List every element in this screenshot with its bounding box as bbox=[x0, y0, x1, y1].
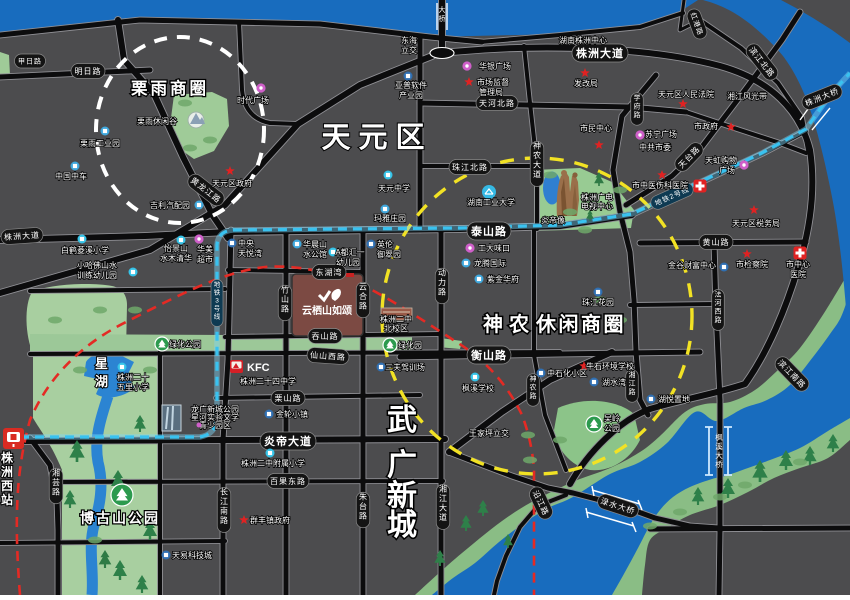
svg-text:道: 道 bbox=[533, 169, 541, 179]
svg-text:中石化小区: 中石化小区 bbox=[547, 368, 587, 378]
svg-text:明日路: 明日路 bbox=[75, 66, 102, 76]
svg-text:路: 路 bbox=[359, 300, 367, 310]
svg-text:湘: 湘 bbox=[439, 484, 447, 494]
svg-text:市场监督: 市场监督 bbox=[477, 77, 509, 87]
svg-text:栗雨工业园: 栗雨工业园 bbox=[80, 138, 120, 148]
svg-text:百果东路: 百果东路 bbox=[270, 476, 306, 486]
svg-text:栗雨休闲谷: 栗雨休闲谷 bbox=[137, 116, 177, 126]
svg-text:天虹购物: 天虹购物 bbox=[705, 155, 737, 165]
svg-text:株洲二中: 株洲二中 bbox=[380, 314, 412, 324]
svg-text:大: 大 bbox=[439, 503, 447, 513]
svg-text:水木清华: 水木清华 bbox=[160, 253, 192, 263]
svg-text:大: 大 bbox=[439, 5, 446, 14]
svg-text:城: 城 bbox=[387, 509, 417, 542]
svg-text:农: 农 bbox=[533, 150, 541, 160]
svg-text:金谷财富中心: 金谷财富中心 bbox=[668, 260, 716, 270]
svg-text:江: 江 bbox=[439, 494, 447, 503]
svg-text:发改局: 发改局 bbox=[574, 78, 598, 88]
svg-text:线: 线 bbox=[214, 312, 221, 321]
svg-text:动: 动 bbox=[438, 267, 446, 277]
svg-text:大: 大 bbox=[533, 160, 541, 170]
svg-text:华美: 华美 bbox=[197, 244, 213, 254]
svg-text:湘江风光带: 湘江风光带 bbox=[727, 91, 767, 101]
svg-text:湖水湾: 湖水湾 bbox=[602, 377, 626, 387]
svg-text:吉利汽配园: 吉利汽配园 bbox=[150, 200, 190, 210]
svg-text:天元区政府: 天元区政府 bbox=[212, 178, 252, 188]
svg-text:株: 株 bbox=[1, 450, 14, 465]
svg-text:长: 长 bbox=[220, 487, 228, 497]
svg-text:湖南工业大学: 湖南工业大学 bbox=[467, 197, 515, 207]
svg-text:产业园: 产业园 bbox=[399, 90, 423, 100]
svg-text:管理局: 管理局 bbox=[479, 87, 503, 97]
svg-text:市检察院: 市检察院 bbox=[736, 259, 768, 269]
svg-text:天元区人民法院: 天元区人民法院 bbox=[658, 89, 714, 99]
svg-text:朱: 朱 bbox=[359, 491, 367, 501]
svg-text:牛石环境学校: 牛石环境学校 bbox=[586, 361, 634, 371]
svg-text:市中心: 市中心 bbox=[786, 259, 810, 269]
svg-text:桥: 桥 bbox=[715, 459, 723, 469]
svg-text:英伦: 英伦 bbox=[377, 239, 393, 249]
svg-text:博古山公园: 博古山公园 bbox=[80, 510, 160, 526]
svg-text:天悦湾: 天悦湾 bbox=[238, 248, 262, 258]
svg-text:株洲广电: 株洲广电 bbox=[581, 192, 613, 202]
svg-text:时代广场: 时代广场 bbox=[237, 95, 269, 105]
svg-text:衡山路: 衡山路 bbox=[471, 348, 507, 362]
svg-text:地: 地 bbox=[214, 280, 221, 289]
svg-text:东湖湾: 东湖湾 bbox=[316, 267, 343, 277]
svg-text:株洲二十: 株洲二十 bbox=[117, 372, 149, 382]
svg-text:甲日路: 甲日路 bbox=[18, 57, 42, 66]
svg-text:市政府: 市政府 bbox=[694, 121, 718, 131]
svg-text:炎帝像: 炎帝像 bbox=[541, 215, 565, 225]
svg-text:小哈佛山水: 小哈佛山水 bbox=[77, 260, 117, 270]
svg-text:东海: 东海 bbox=[401, 35, 417, 45]
svg-text:西: 西 bbox=[1, 479, 13, 493]
svg-text:合: 合 bbox=[359, 291, 367, 301]
svg-text:电视中心: 电视中心 bbox=[581, 201, 613, 211]
svg-text:神农: 神农 bbox=[483, 312, 535, 336]
svg-text:西: 西 bbox=[715, 308, 722, 316]
svg-text:府: 府 bbox=[634, 101, 641, 110]
svg-text:大: 大 bbox=[715, 450, 723, 460]
svg-text:云: 云 bbox=[359, 282, 367, 291]
svg-text:道: 道 bbox=[439, 512, 447, 522]
svg-text:市民中心: 市民中心 bbox=[580, 123, 612, 133]
svg-text:学: 学 bbox=[634, 93, 641, 102]
svg-text:枫溪学校: 枫溪学校 bbox=[462, 383, 494, 393]
svg-text:金轮小镇: 金轮小镇 bbox=[276, 409, 308, 419]
svg-text:A都汇一: A都汇一 bbox=[335, 248, 364, 257]
svg-text:路: 路 bbox=[715, 315, 722, 324]
svg-text:路: 路 bbox=[530, 391, 537, 400]
svg-text:栗雨商圈: 栗雨商圈 bbox=[131, 78, 209, 98]
svg-text:怡景山: 怡景山 bbox=[164, 243, 188, 253]
svg-text:泰山路: 泰山路 bbox=[470, 224, 507, 238]
svg-text:号: 号 bbox=[214, 305, 221, 313]
svg-text:天河北路: 天河北路 bbox=[479, 98, 515, 108]
svg-text:珠江北路: 珠江北路 bbox=[452, 162, 488, 172]
svg-text:溪: 溪 bbox=[715, 441, 723, 451]
svg-text:栗山路: 栗山路 bbox=[275, 393, 302, 403]
svg-text:中央: 中央 bbox=[238, 238, 254, 248]
svg-text:工大味口: 工大味口 bbox=[478, 243, 510, 253]
svg-text:路: 路 bbox=[281, 303, 289, 313]
svg-text:广: 广 bbox=[387, 449, 417, 482]
svg-text:五里小学: 五里小学 bbox=[117, 382, 149, 392]
svg-text:株洲二中附属小学: 株洲二中附属小学 bbox=[241, 458, 305, 468]
svg-text:休闲商圈: 休闲商圈 bbox=[535, 312, 626, 336]
svg-text:法: 法 bbox=[715, 290, 722, 299]
svg-text:武: 武 bbox=[387, 404, 417, 437]
svg-text:南: 南 bbox=[220, 506, 228, 516]
svg-text:水公馆: 水公馆 bbox=[303, 249, 327, 259]
svg-text:立交: 立交 bbox=[401, 45, 417, 55]
svg-text:苏宁广场: 苏宁广场 bbox=[645, 129, 677, 139]
svg-text:农: 农 bbox=[530, 382, 537, 391]
svg-text:黄山路: 黄山路 bbox=[703, 237, 730, 247]
svg-text:中共市委: 中共市委 bbox=[639, 142, 671, 152]
svg-text:天元中学: 天元中学 bbox=[378, 183, 410, 193]
svg-text:幼儿园: 幼儿园 bbox=[336, 257, 360, 267]
svg-text:路: 路 bbox=[52, 486, 60, 496]
svg-text:神: 神 bbox=[533, 141, 541, 151]
svg-text:吴岭: 吴岭 bbox=[604, 413, 620, 423]
svg-text:天元区税务局: 天元区税务局 bbox=[732, 218, 780, 228]
svg-text:桥: 桥 bbox=[439, 14, 446, 23]
svg-text:芸: 芸 bbox=[52, 477, 60, 487]
svg-text:玛雅庄园: 玛雅庄园 bbox=[374, 213, 406, 223]
svg-text:医院: 医院 bbox=[790, 269, 806, 279]
svg-text:KFC: KFC bbox=[247, 362, 270, 374]
svg-text:湘: 湘 bbox=[629, 370, 636, 379]
svg-text:御翠园: 御翠园 bbox=[377, 249, 401, 259]
svg-text:训练幼儿园: 训练幼儿园 bbox=[77, 270, 117, 280]
svg-text:路: 路 bbox=[629, 387, 636, 396]
svg-text:路: 路 bbox=[634, 110, 641, 119]
svg-text:3: 3 bbox=[215, 298, 219, 305]
svg-text:群丰镇政府: 群丰镇政府 bbox=[250, 515, 290, 525]
svg-text:华晨山: 华晨山 bbox=[303, 239, 327, 249]
svg-text:力: 力 bbox=[438, 277, 446, 287]
svg-text:台: 台 bbox=[359, 501, 367, 511]
svg-text:中国中车: 中国中车 bbox=[55, 171, 87, 181]
svg-text:市中医伤科医院: 市中医伤科医院 bbox=[632, 180, 688, 190]
svg-text:站: 站 bbox=[1, 492, 13, 507]
svg-text:路: 路 bbox=[359, 510, 367, 520]
svg-text:公园: 公园 bbox=[604, 424, 620, 433]
svg-text:王家坪立交: 王家坪立交 bbox=[469, 428, 509, 438]
svg-text:江: 江 bbox=[629, 379, 636, 387]
svg-text:湘: 湘 bbox=[52, 467, 60, 477]
svg-text:绿化公园: 绿化公园 bbox=[169, 339, 201, 349]
svg-text:绿化园: 绿化园 bbox=[398, 340, 422, 350]
svg-text:湖南株洲中心: 湖南株洲中心 bbox=[559, 35, 607, 45]
svg-text:神: 神 bbox=[530, 374, 537, 383]
svg-text:路: 路 bbox=[438, 286, 446, 296]
svg-text:龙腾国际: 龙腾国际 bbox=[474, 258, 506, 268]
svg-text:三夫驾训场: 三夫驾训场 bbox=[385, 362, 425, 372]
svg-text:株洲大道: 株洲大道 bbox=[576, 46, 624, 60]
svg-text:山: 山 bbox=[281, 294, 289, 304]
svg-text:天元区: 天元区 bbox=[321, 122, 432, 154]
svg-text:枫: 枫 bbox=[715, 432, 723, 442]
svg-text:华银广场: 华银广场 bbox=[479, 61, 511, 71]
svg-text:珠江花园: 珠江花园 bbox=[582, 297, 614, 307]
svg-text:星: 星 bbox=[95, 356, 108, 371]
svg-text:湖: 湖 bbox=[95, 374, 108, 389]
svg-text:北校区: 北校区 bbox=[384, 323, 408, 333]
svg-text:天易科技城: 天易科技城 bbox=[172, 550, 212, 560]
svg-text:青少园区: 青少园区 bbox=[199, 420, 231, 430]
svg-text:超市: 超市 bbox=[197, 254, 213, 264]
svg-text:白鹤菱溪小学: 白鹤菱溪小学 bbox=[61, 245, 109, 255]
svg-text:铁: 铁 bbox=[214, 288, 221, 297]
svg-text:亚普软件: 亚普软件 bbox=[395, 80, 427, 90]
svg-text:洲: 洲 bbox=[1, 465, 13, 479]
svg-text:吞山路: 吞山路 bbox=[312, 331, 339, 341]
svg-text:湖悦置地: 湖悦置地 bbox=[658, 394, 690, 404]
svg-text:紫金华府: 紫金华府 bbox=[487, 274, 519, 284]
svg-text:株洲二十四中学: 株洲二十四中学 bbox=[240, 376, 296, 386]
svg-text:河: 河 bbox=[715, 299, 722, 307]
svg-text:路: 路 bbox=[220, 515, 228, 525]
svg-text:广场: 广场 bbox=[719, 165, 735, 175]
svg-text:江: 江 bbox=[220, 497, 228, 506]
svg-text:炎帝大道: 炎帝大道 bbox=[264, 434, 312, 448]
svg-text:云栖山如颂: 云栖山如颂 bbox=[302, 304, 352, 317]
svg-text:竹: 竹 bbox=[281, 284, 289, 294]
